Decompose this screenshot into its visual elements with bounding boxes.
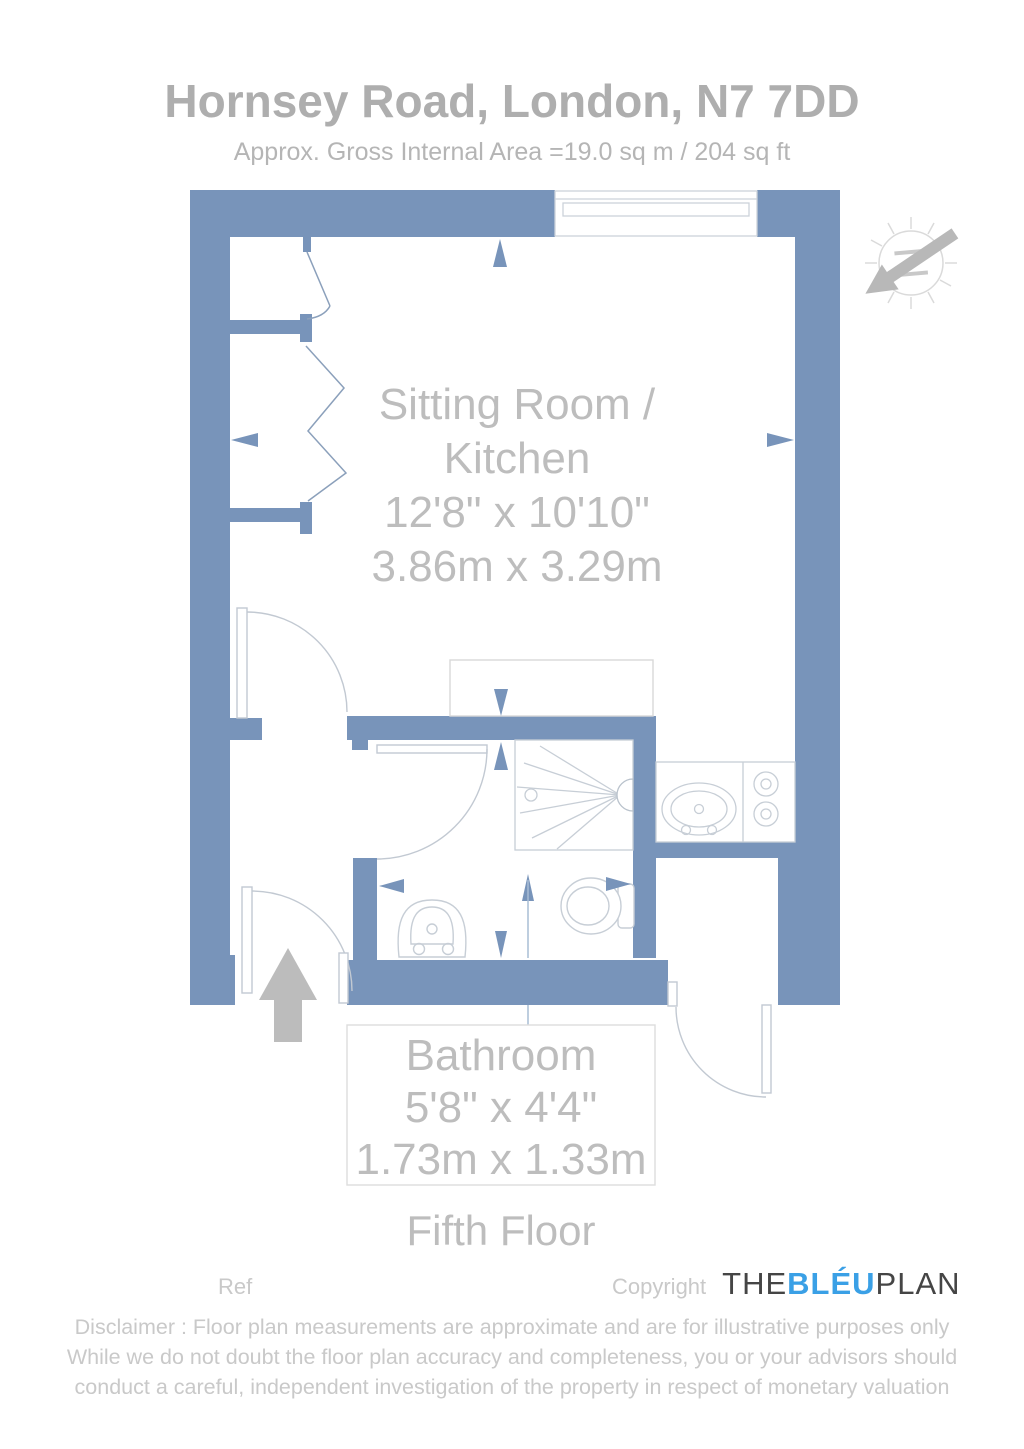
furniture-outline — [450, 660, 653, 716]
page-subtitle: Approx. Gross Internal Area =19.0 sq m /… — [0, 138, 1024, 167]
bathroom-name: Bathroom — [297, 1030, 705, 1082]
disclaimer-line-3: conduct a careful, independent investiga… — [0, 1372, 1024, 1402]
entry-arrow — [259, 948, 317, 1042]
bathroom-dimensions-metric: 1.73m x 1.33m — [297, 1134, 705, 1186]
sitting-room-label: Sitting Room / Kitchen 12'8" x 10'10" 3.… — [217, 378, 817, 594]
hallway-door — [237, 608, 347, 718]
bathroom-door — [377, 745, 487, 859]
window — [555, 191, 757, 236]
kitchen-counter — [656, 762, 795, 842]
ref-label: Ref — [218, 1274, 252, 1300]
walls — [190, 190, 840, 1005]
copyright-label: Copyright — [612, 1274, 706, 1300]
copyright-row: Copyright THEBLÉUPLAN — [612, 1266, 961, 1302]
page-title: Hornsey Road, London, N7 7DD — [0, 74, 1024, 128]
sitting-room-dimensions-metric: 3.86m x 3.29m — [217, 540, 817, 594]
closet-door — [307, 252, 330, 319]
disclaimer-line-1: Disclaimer : Floor plan measurements are… — [0, 1312, 1024, 1342]
brand-the: THE — [722, 1266, 787, 1301]
north-compass: N — [857, 217, 963, 309]
shower — [515, 740, 633, 850]
floorplan-page: N Hornsey Road, London, N7 7DD Approx. G… — [0, 0, 1024, 1449]
brand-bleu: BLÉU — [787, 1266, 875, 1301]
brand-plan: PLAN — [876, 1266, 961, 1301]
floor-label: Fifth Floor — [0, 1207, 1002, 1255]
disclaimer: Disclaimer : Floor plan measurements are… — [0, 1312, 1024, 1402]
sitting-room-name-line2: Kitchen — [217, 432, 817, 486]
toilet — [561, 878, 634, 934]
sitting-room-name-line1: Sitting Room / — [217, 378, 817, 432]
basin — [398, 900, 466, 957]
bathroom-label: Bathroom 5'8" x 4'4" 1.73m x 1.33m — [297, 1030, 705, 1186]
disclaimer-line-2: While we do not doubt the floor plan acc… — [0, 1342, 1024, 1372]
sitting-room-dimensions-imperial: 12'8" x 10'10" — [217, 486, 817, 540]
bathroom-dimensions-imperial: 5'8" x 4'4" — [297, 1082, 705, 1134]
brand-logo: THEBLÉUPLAN — [722, 1266, 960, 1302]
